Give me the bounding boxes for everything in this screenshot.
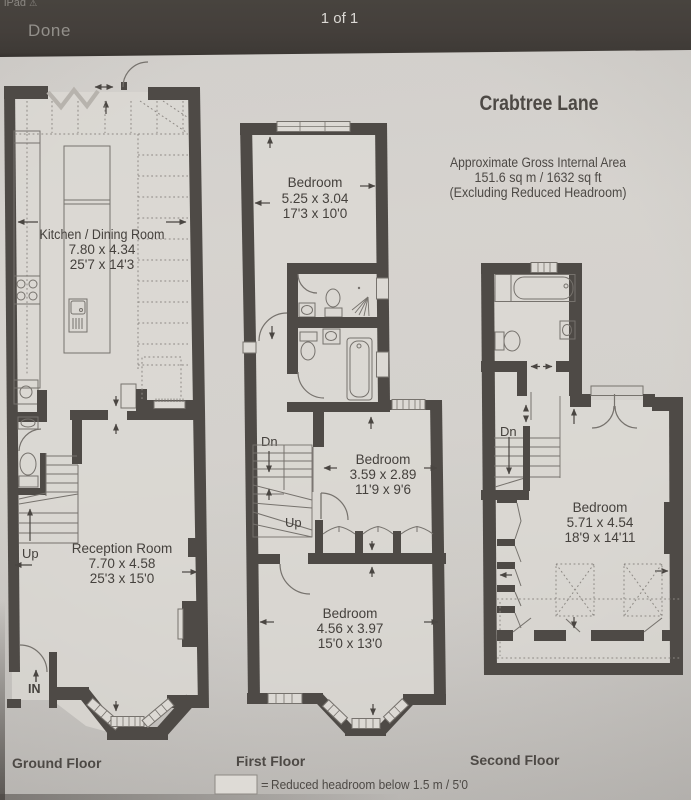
svg-text:4.56 x 3.97: 4.56 x 3.97 <box>317 621 384 636</box>
svg-text:Dn: Dn <box>500 424 517 439</box>
svg-text:Kitchen / Dining Room: Kitchen / Dining Room <box>40 227 165 242</box>
svg-text:7.80 x 4.34: 7.80 x 4.34 <box>69 242 136 257</box>
svg-text:First Floor: First Floor <box>236 753 306 769</box>
svg-text:Reduced headroom below 1.5 m /: Reduced headroom below 1.5 m / 5'0 <box>271 777 468 792</box>
svg-text:Dn: Dn <box>261 434 278 449</box>
svg-text:17'3 x 10'0: 17'3 x 10'0 <box>283 206 347 221</box>
svg-text:Up: Up <box>285 515 302 530</box>
svg-text:Bedroom: Bedroom <box>288 175 343 190</box>
svg-text:Bedroom: Bedroom <box>573 500 628 515</box>
svg-text:Reception Room: Reception Room <box>72 541 173 556</box>
svg-text:IN: IN <box>28 682 41 696</box>
svg-text:Crabtree Lane: Crabtree Lane <box>480 92 599 115</box>
svg-text:151.6 sq m / 1632 sq ft: 151.6 sq m / 1632 sq ft <box>475 170 602 185</box>
svg-text:(Excluding Reduced Headroom): (Excluding Reduced Headroom) <box>450 185 627 200</box>
svg-text:Bedroom: Bedroom <box>323 606 378 621</box>
svg-text:5.25 x 3.04: 5.25 x 3.04 <box>282 191 349 206</box>
svg-text:=: = <box>261 777 269 792</box>
svg-text:7.70 x 4.58: 7.70 x 4.58 <box>89 556 156 571</box>
svg-text:Approximate Gross Internal Are: Approximate Gross Internal Area <box>450 155 626 170</box>
svg-text:11'9 x 9'6: 11'9 x 9'6 <box>355 482 411 497</box>
svg-text:25'3 x 15'0: 25'3 x 15'0 <box>90 571 154 586</box>
svg-text:Up: Up <box>22 546 39 561</box>
svg-text:Second Floor: Second Floor <box>470 752 560 768</box>
svg-text:Ground Floor: Ground Floor <box>12 755 102 771</box>
svg-text:18'9 x 14'11: 18'9 x 14'11 <box>565 530 636 545</box>
svg-text:3.59 x 2.89: 3.59 x 2.89 <box>350 467 417 482</box>
svg-text:5.71 x 4.54: 5.71 x 4.54 <box>567 515 634 530</box>
svg-text:25'7 x 14'3: 25'7 x 14'3 <box>70 257 134 272</box>
svg-text:15'0 x 13'0: 15'0 x 13'0 <box>318 636 382 651</box>
svg-text:Bedroom: Bedroom <box>356 452 411 467</box>
